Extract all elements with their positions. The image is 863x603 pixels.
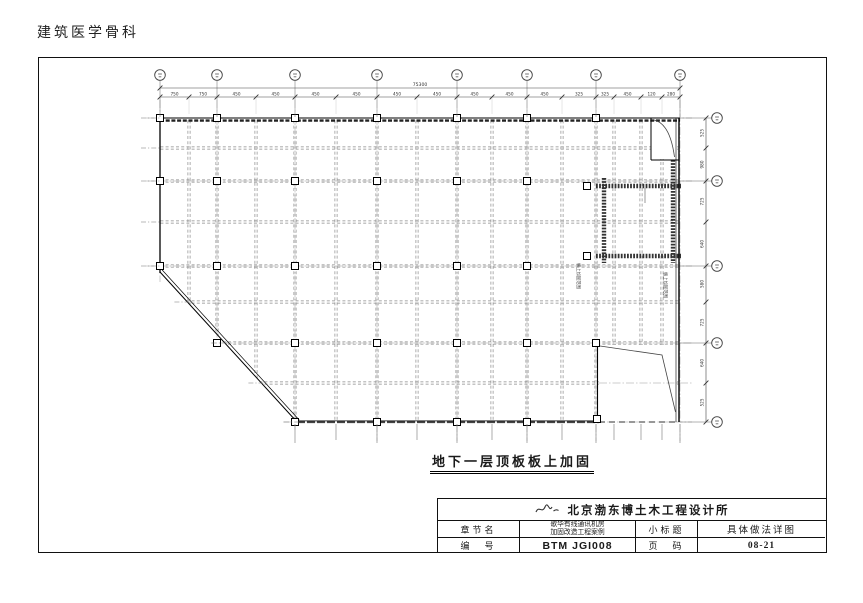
column-marker — [454, 263, 461, 270]
dimension-label: 450 — [393, 91, 401, 96]
dimension-label: 750 — [171, 91, 179, 96]
column-marker — [454, 178, 461, 185]
building-diagonal-edge — [160, 272, 297, 422]
column-marker — [214, 263, 221, 270]
grid-bubble — [212, 70, 223, 81]
dimension-label: 450 — [471, 91, 479, 96]
grid-bubble — [452, 70, 463, 81]
drawing-number: BTM JGI008 — [520, 538, 636, 553]
grid-bubble — [372, 70, 383, 81]
grid-bubble — [522, 70, 533, 81]
dimension-label: 280 — [667, 91, 675, 96]
column-marker — [524, 340, 531, 347]
company-name: 北京渤东博土木工程设计所 — [568, 502, 730, 518]
building-diagonal-edge-inner — [162, 270, 299, 420]
dimension-label: 450 — [353, 91, 361, 96]
column-marker — [157, 178, 164, 185]
tiny-annotation: 板上加固范围 — [575, 263, 582, 289]
grid-bubble — [712, 176, 723, 187]
column-marker — [594, 416, 601, 423]
column-marker — [292, 263, 299, 270]
drawing-sheet: 建筑医学骨科 753007507504504504504504504504504… — [0, 0, 863, 603]
column-marker — [374, 340, 381, 347]
title-block: 北京渤东博土木工程设计所 章节名 歌华有线通讯机房 加固改造工程案例 小标题 具… — [437, 498, 827, 553]
column-marker — [584, 183, 591, 190]
field-label-number: 编 号 — [438, 538, 520, 553]
dimension-label: 525 — [699, 398, 704, 406]
column-marker — [524, 178, 531, 185]
field-label-page: 页 码 — [636, 538, 698, 553]
column-marker — [214, 178, 221, 185]
column-marker — [454, 340, 461, 347]
column-marker — [584, 253, 591, 260]
company-row: 北京渤东博土木工程设计所 — [438, 499, 826, 521]
grid-bubble — [712, 261, 723, 272]
column-marker — [292, 340, 299, 347]
grid-bubble — [155, 70, 166, 81]
dimension-label: 120 — [648, 91, 656, 96]
project-name: 歌华有线通讯机房 加固改造工程案例 — [520, 521, 636, 538]
column-marker — [374, 263, 381, 270]
dimension-label: 450 — [233, 91, 241, 96]
dimension-label: 450 — [272, 91, 280, 96]
grid-bubble — [290, 70, 301, 81]
ramp-zone-bottomright — [599, 345, 677, 420]
dimension-label: 450 — [506, 91, 514, 96]
grid-bubble — [712, 113, 723, 124]
dimension-label: 725 — [699, 318, 704, 326]
column-marker — [157, 263, 164, 270]
dimension-label: 640 — [699, 359, 704, 367]
grid-bubble — [712, 417, 723, 428]
page-number: 08-21 — [698, 538, 825, 553]
ramp-zone-topright — [651, 119, 677, 159]
company-logo-icon — [535, 503, 561, 516]
grid-bubble — [591, 70, 602, 81]
dimension-label: 450 — [541, 91, 549, 96]
dimension-label: 725 — [699, 197, 704, 205]
dimension-label: 980 — [699, 160, 704, 168]
column-marker — [374, 178, 381, 185]
dimension-label: 325 — [601, 91, 609, 96]
dimension-label: 580 — [699, 280, 704, 288]
drawing-caption: 地下一层顶板板上加固 — [430, 451, 594, 474]
tiny-annotation: 板上加固范围 — [662, 272, 669, 298]
subtitle-value: 具体做法详图 — [698, 521, 825, 538]
dimension-label: 750 — [199, 91, 207, 96]
grid-bubble — [712, 338, 723, 349]
field-label-chapter: 章节名 — [438, 521, 520, 538]
field-label-subtitle: 小标题 — [636, 521, 698, 538]
dimension-label: 640 — [699, 240, 704, 248]
dimension-label: 450 — [433, 91, 441, 96]
grid-bubble — [675, 70, 686, 81]
title-block-fields: 章节名 歌华有线通讯机房 加固改造工程案例 小标题 具体做法详图 编 号 BTM… — [438, 521, 826, 553]
dimension-label: 325 — [575, 91, 583, 96]
dimension-label: 525 — [699, 129, 704, 137]
column-marker — [292, 178, 299, 185]
dimension-total-label: 75300 — [413, 82, 428, 88]
column-marker — [524, 263, 531, 270]
column-marker — [593, 340, 600, 347]
dimension-label: 450 — [312, 91, 320, 96]
dimension-label: 450 — [624, 91, 632, 96]
